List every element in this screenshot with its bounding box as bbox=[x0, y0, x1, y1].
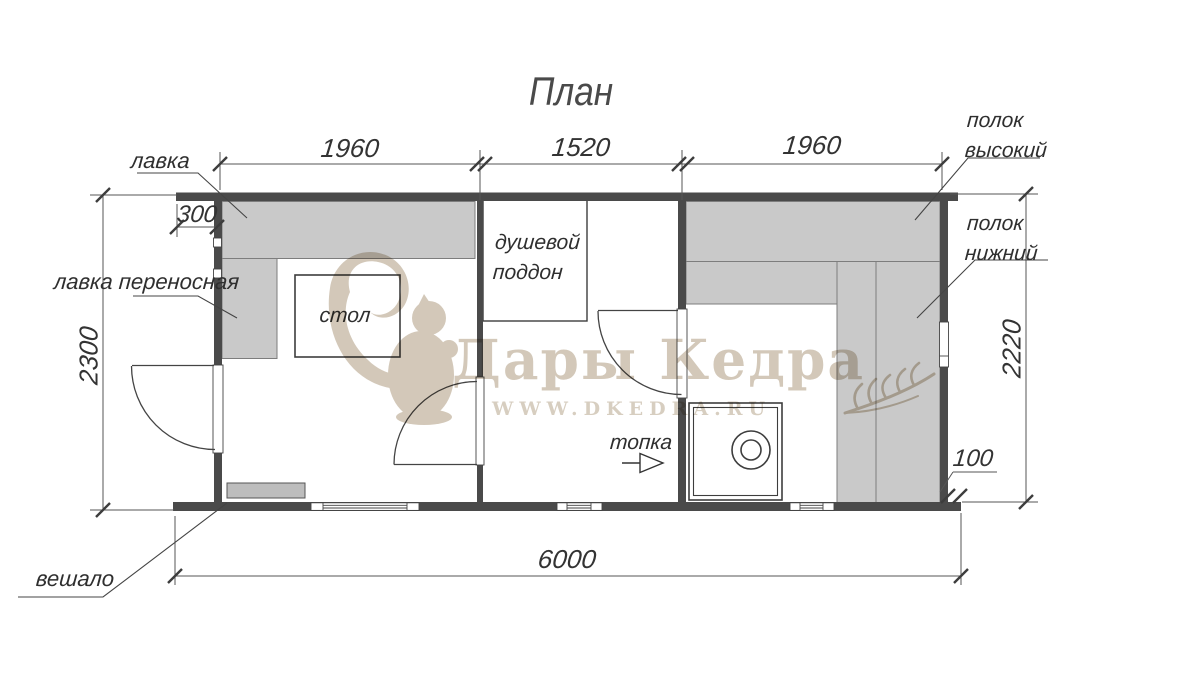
door-opening-entrance bbox=[213, 365, 223, 453]
bottom-window-sauna bbox=[790, 503, 834, 511]
label-shower-tray: душевой поддон bbox=[492, 228, 586, 289]
dim-overhang: 300 bbox=[166, 201, 229, 229]
shelf-high-top bbox=[686, 202, 940, 262]
bench-top-left-room bbox=[222, 202, 475, 259]
wall-top bbox=[176, 193, 958, 202]
label-hanger: вешало bbox=[35, 563, 115, 595]
floor-plan-page: План bbox=[0, 0, 1200, 694]
entrance-door-arc bbox=[132, 366, 216, 450]
page-title: План bbox=[483, 70, 659, 115]
label-firebox: топка bbox=[609, 428, 671, 458]
bottom-window-washroom bbox=[557, 503, 602, 511]
dim-left-height: 2300 bbox=[74, 304, 105, 407]
hanger-bar bbox=[227, 483, 305, 498]
dim-bottom-total: 6000 bbox=[515, 544, 618, 575]
shelf-mid-strip bbox=[686, 262, 837, 305]
label-table: стол bbox=[314, 301, 376, 331]
dim-top-middle: 1520 bbox=[529, 132, 632, 163]
shelf-low-step bbox=[837, 262, 876, 503]
dim-top-right: 1960 bbox=[760, 130, 863, 161]
right-wall-window bbox=[940, 322, 949, 367]
bottom-window-left-room bbox=[311, 503, 419, 511]
sauna-door-arc bbox=[598, 311, 682, 395]
label-shelf-high: полок высокий bbox=[964, 106, 1048, 167]
label-bench: лавка bbox=[130, 145, 191, 177]
label-bench-portable: лавка переносная bbox=[53, 266, 240, 298]
door-opening-sauna bbox=[677, 309, 687, 398]
left-wall-vent-1 bbox=[214, 238, 222, 247]
dim-top-left: 1960 bbox=[298, 133, 401, 164]
washroom-door-arc bbox=[394, 382, 477, 465]
shelf-low-main bbox=[876, 262, 940, 503]
dim-right-offset: 100 bbox=[942, 445, 1005, 473]
label-shelf-low: полок нижний bbox=[964, 209, 1046, 270]
dim-right-height: 2220 bbox=[997, 297, 1028, 400]
door-opening-washroom bbox=[476, 377, 484, 465]
stove-inner bbox=[694, 408, 778, 496]
